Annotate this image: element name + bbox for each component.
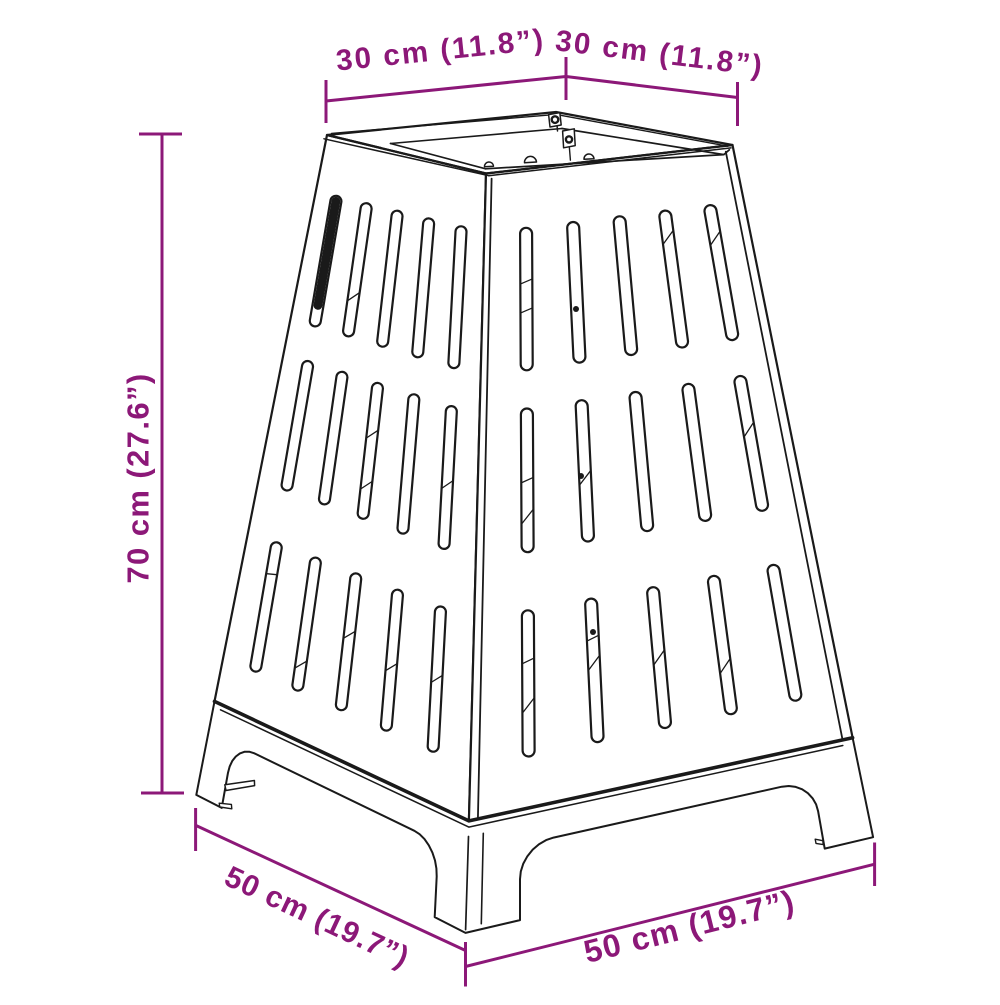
svg-text:70 cm (27.6”): 70 cm (27.6”)	[121, 372, 156, 583]
